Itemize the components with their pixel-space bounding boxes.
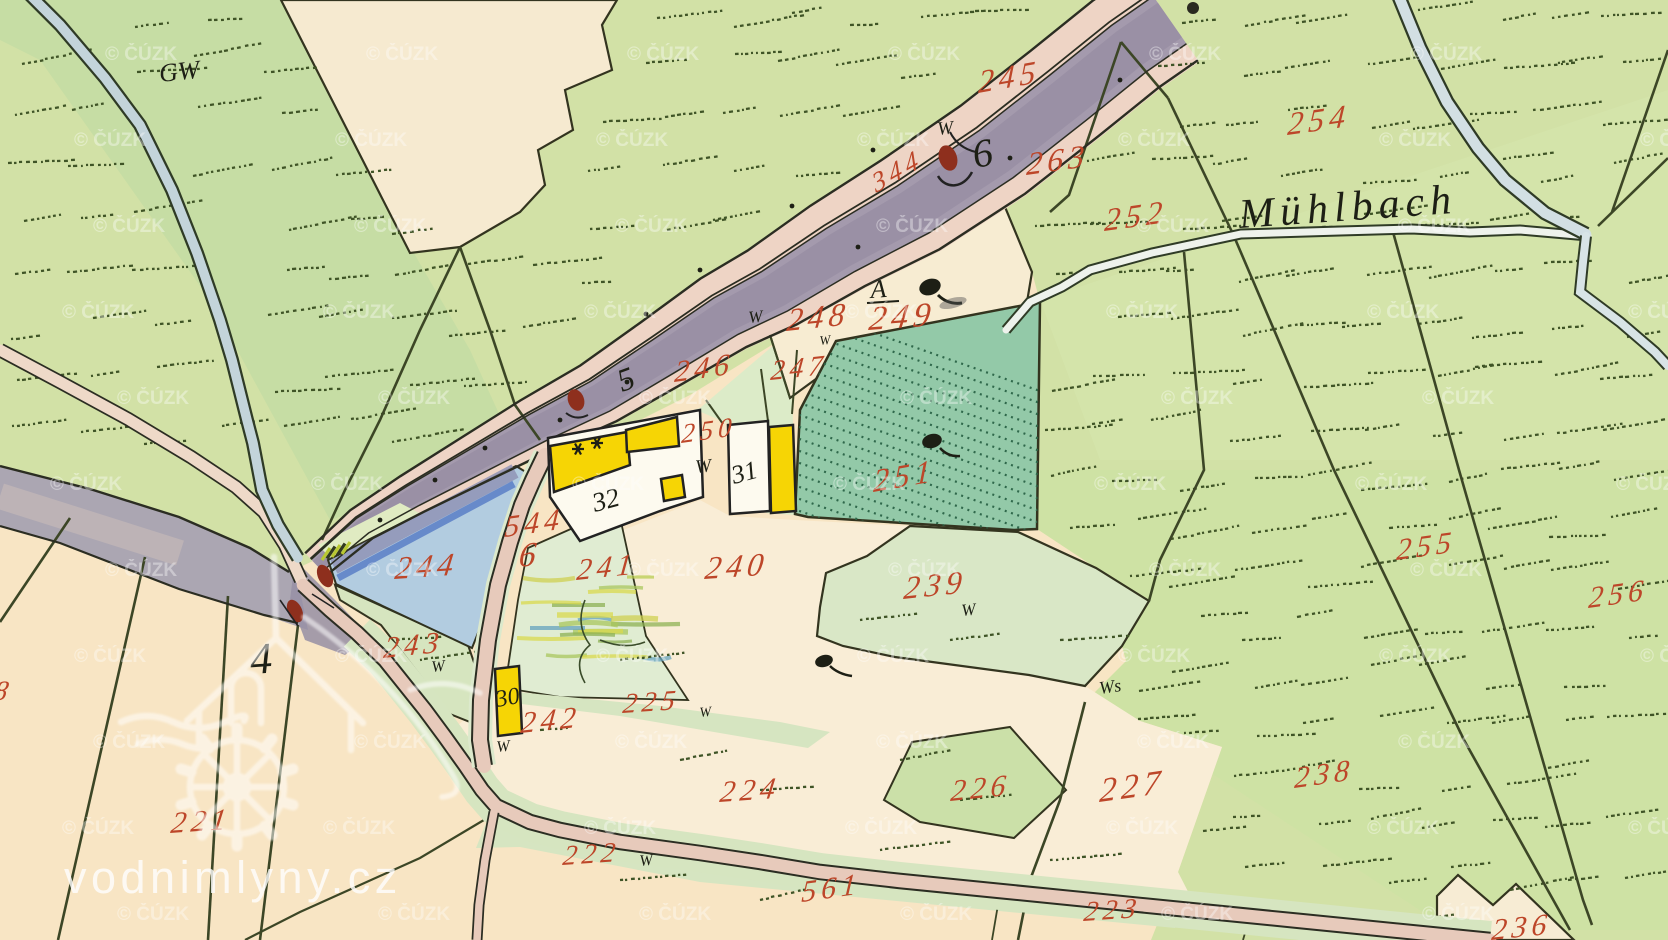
svg-text:© ČÚZK: © ČÚZK <box>1137 731 1209 753</box>
svg-text:© ČÚZK: © ČÚZK <box>584 817 656 839</box>
svg-text:© ČÚZK: © ČÚZK <box>1422 387 1494 409</box>
svg-text:© ČÚZK: © ČÚZK <box>1640 129 1668 151</box>
svg-text:© ČÚZK: © ČÚZK <box>1094 473 1166 495</box>
svg-text:© ČÚZK: © ČÚZK <box>900 903 972 925</box>
svg-text:© ČÚZK: © ČÚZK <box>615 215 687 237</box>
svg-text:A: A <box>867 274 887 304</box>
svg-text:© ČÚZK: © ČÚZK <box>857 645 929 667</box>
svg-text:© ČÚZK: © ČÚZK <box>1628 817 1668 839</box>
svg-text:© ČÚZK: © ČÚZK <box>335 129 407 151</box>
svg-text:© ČÚZK: © ČÚZK <box>105 559 177 581</box>
svg-text:© ČÚZK: © ČÚZK <box>354 731 426 753</box>
svg-text:223: 223 <box>1082 893 1143 928</box>
svg-text:247: 247 <box>769 350 829 387</box>
svg-text:© ČÚZK: © ČÚZK <box>876 731 948 753</box>
svg-text:© ČÚZK: © ČÚZK <box>572 473 644 495</box>
svg-text:© ČÚZK: © ČÚZK <box>1149 43 1221 65</box>
svg-text:© ČÚZK: © ČÚZK <box>117 387 189 409</box>
svg-text:© ČÚZK: © ČÚZK <box>1410 559 1482 581</box>
svg-text:© ČÚZK: © ČÚZK <box>1106 301 1178 323</box>
svg-text:© ČÚZK: © ČÚZK <box>378 903 450 925</box>
svg-text:© ČÚZK: © ČÚZK <box>323 817 395 839</box>
svg-text:© ČÚZK: © ČÚZK <box>323 301 395 323</box>
svg-text:© ČÚZK: © ČÚZK <box>62 301 134 323</box>
svg-text:236: 236 <box>1490 907 1553 940</box>
svg-text:© ČÚZK: © ČÚZK <box>354 215 426 237</box>
svg-text:© ČÚZK: © ČÚZK <box>1367 817 1439 839</box>
svg-text:© ČÚZK: © ČÚZK <box>366 559 438 581</box>
svg-text:© ČÚZK: © ČÚZK <box>888 43 960 65</box>
svg-text:© ČÚZK: © ČÚZK <box>1161 387 1233 409</box>
svg-text:© ČÚZK: © ČÚZK <box>596 645 668 667</box>
svg-text:© ČÚZK: © ČÚZK <box>1355 473 1427 495</box>
svg-text:© ČÚZK: © ČÚZK <box>627 559 699 581</box>
svg-text:© ČÚZK: © ČÚZK <box>900 387 972 409</box>
svg-text:© ČÚZK: © ČÚZK <box>857 129 929 151</box>
svg-text:© ČÚZK: © ČÚZK <box>615 731 687 753</box>
svg-text:© ČÚZK: © ČÚZK <box>833 473 905 495</box>
svg-text:© ČÚZK: © ČÚZK <box>105 43 177 65</box>
svg-text:© ČÚZK: © ČÚZK <box>1379 645 1451 667</box>
svg-text:© ČÚZK: © ČÚZK <box>1379 129 1451 151</box>
svg-text:© ČÚZK: © ČÚZK <box>50 473 122 495</box>
svg-text:© ČÚZK: © ČÚZK <box>378 387 450 409</box>
svg-text:© ČÚZK: © ČÚZK <box>1137 215 1209 237</box>
svg-text:225: 225 <box>621 685 682 720</box>
svg-text:222: 222 <box>561 837 622 872</box>
svg-text:© ČÚZK: © ČÚZK <box>888 559 960 581</box>
svg-text:© ČÚZK: © ČÚZK <box>62 817 134 839</box>
svg-text:30: 30 <box>493 683 522 713</box>
svg-text:© ČÚZK: © ČÚZK <box>1640 645 1668 667</box>
svg-text:© ČÚZK: © ČÚZK <box>1118 129 1190 151</box>
svg-text:© ČÚZK: © ČÚZK <box>1161 903 1233 925</box>
svg-text:© ČÚZK: © ČÚZK <box>1422 903 1494 925</box>
svg-text:© ČÚZK: © ČÚZK <box>639 387 711 409</box>
svg-text:Ws: Ws <box>1098 675 1123 698</box>
svg-text:© ČÚZK: © ČÚZK <box>366 43 438 65</box>
svg-text:© ČÚZK: © ČÚZK <box>311 473 383 495</box>
svg-text:© ČÚZK: © ČÚZK <box>1398 731 1470 753</box>
svg-text:6: 6 <box>517 535 543 576</box>
svg-text:226: 226 <box>949 768 1012 808</box>
svg-text:© ČÚZK: © ČÚZK <box>845 817 917 839</box>
svg-text:240: 240 <box>703 546 771 586</box>
svg-text:© ČÚZK: © ČÚZK <box>74 129 146 151</box>
svg-text:© ČÚZK: © ČÚZK <box>1410 43 1482 65</box>
svg-text:© ČÚZK: © ČÚZK <box>876 215 948 237</box>
svg-text:248: 248 <box>785 295 851 338</box>
svg-text:© ČÚZK: © ČÚZK <box>1628 301 1668 323</box>
svg-text:© ČÚZK: © ČÚZK <box>93 215 165 237</box>
svg-text:© ČÚZK: © ČÚZK <box>596 129 668 151</box>
svg-text:© ČÚZK: © ČÚZK <box>117 903 189 925</box>
svg-text:© ČÚZK: © ČÚZK <box>1106 817 1178 839</box>
svg-text:© ČÚZK: © ČÚZK <box>74 645 146 667</box>
svg-text:© ČÚZK: © ČÚZK <box>1367 301 1439 323</box>
svg-text:© ČÚZK: © ČÚZK <box>1398 215 1470 237</box>
svg-text:vodnimlyny.cz: vodnimlyny.cz <box>64 852 402 903</box>
svg-text:© ČÚZK: © ČÚZK <box>845 301 917 323</box>
svg-text:© ČÚZK: © ČÚZK <box>1616 473 1668 495</box>
svg-text:242: 242 <box>519 700 582 740</box>
svg-text:© ČÚZK: © ČÚZK <box>1118 645 1190 667</box>
svg-text:© ČÚZK: © ČÚZK <box>584 301 656 323</box>
svg-text:© ČÚZK: © ČÚZK <box>627 43 699 65</box>
svg-text:224: 224 <box>718 771 783 809</box>
svg-text:© ČÚZK: © ČÚZK <box>639 903 711 925</box>
svg-text:© ČÚZK: © ČÚZK <box>1149 559 1221 581</box>
